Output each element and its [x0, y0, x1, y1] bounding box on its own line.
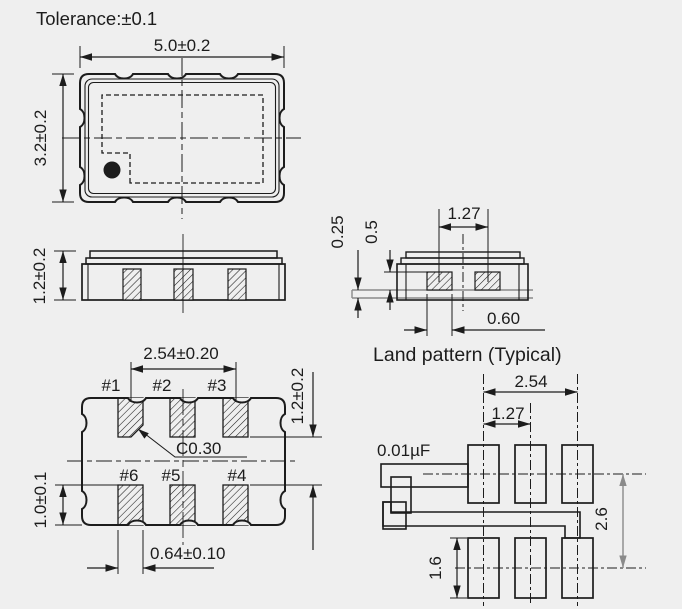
dim-pad-width: 0.60: [487, 309, 520, 328]
dim-body-width: 5.0±0.2: [154, 36, 211, 55]
land-pattern-caption: Land pattern (Typical): [373, 344, 562, 366]
mounting-cross-section: 1.27 0.5 0.25 0.60: [328, 204, 545, 336]
pin-label-6: #6: [120, 466, 139, 485]
capacitor-land-2: [383, 502, 406, 529]
pin-label-5: #5: [162, 466, 181, 485]
capacitor-trace-upper: [381, 464, 468, 487]
dim-row-gap: 1.2±0.2: [288, 368, 307, 425]
dim-land-half-pitch: 1.27: [491, 404, 524, 423]
pad-4: [223, 485, 248, 525]
tolerance-note: Tolerance:±0.1: [36, 8, 157, 29]
pin-label-1: #1: [102, 376, 121, 395]
dim-pad-pitch: 1.27: [447, 204, 480, 223]
pad-3: [223, 398, 248, 437]
pin-label-2: #2: [153, 376, 172, 395]
package-drawing-sheet: Tolerance:±0.1 5.0±0.2 3.2±0.2 1.2±0: [0, 0, 682, 609]
pin-label-3: #3: [208, 376, 227, 395]
dim-body-thickness: 1.2±0.2: [30, 248, 49, 305]
side-view: 1.2±0.2: [30, 234, 285, 313]
dim-row-pitch: 2.6: [592, 507, 611, 531]
castellation-pad: [123, 269, 141, 300]
dim-pad-height: 0.5: [362, 220, 381, 244]
lid-base: [86, 258, 282, 264]
castellation-pad: [174, 269, 193, 300]
top-view: 5.0±0.2 3.2±0.2: [31, 36, 301, 219]
capacitor-land-1: [391, 477, 411, 513]
pin1-index-mark: [104, 162, 121, 179]
dim-body-height: 3.2±0.2: [31, 110, 50, 167]
dim-pad-width: 0.64±0.10: [150, 544, 226, 563]
pad-6: [118, 485, 143, 525]
dim-pad-length: 1.0±0.1: [31, 472, 50, 529]
land-pattern-layout: 2.54 1.27 0.01µF 2.6 1.6: [377, 372, 646, 606]
capacitor-trace-lower: [383, 502, 580, 538]
bottom-view: #1 #2 #3 #6 #5 #4 2.54±0.20 C0.30 1.2±0.…: [31, 344, 322, 574]
pad-5: [170, 485, 195, 525]
dim-land-thickness: 0.25: [328, 215, 347, 248]
castellation-pad: [228, 269, 246, 300]
dim-land-length: 1.6: [426, 556, 445, 580]
pad-2: [170, 398, 195, 437]
drawing-canvas: Tolerance:±0.1 5.0±0.2 3.2±0.2 1.2±0: [0, 0, 682, 609]
lid-top: [90, 251, 277, 258]
pad-1: [118, 398, 143, 437]
chamfer-note: C0.30: [176, 439, 221, 458]
capacitor-value-label: 0.01µF: [377, 441, 430, 460]
dim-land-pitch: 2.54: [514, 372, 547, 391]
leader-arrowhead: [138, 429, 149, 439]
pin-label-4: #4: [228, 466, 247, 485]
dim-pad-pitch: 2.54±0.20: [143, 344, 219, 363]
